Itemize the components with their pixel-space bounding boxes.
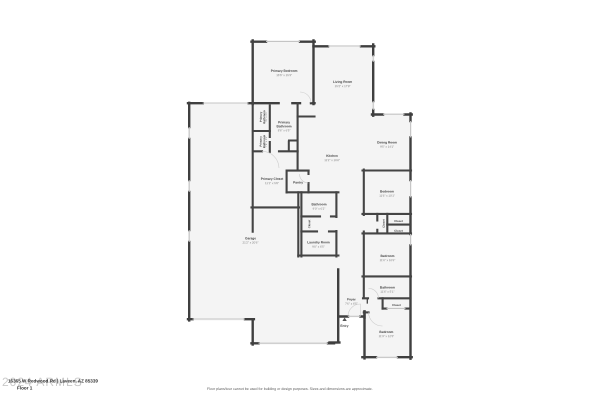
svg-text:9'0" x 6'2": 9'0" x 6'2": [313, 207, 326, 211]
svg-text:Closet: Closet: [394, 219, 403, 223]
svg-text:8'6" x 6'5": 8'6" x 6'5": [278, 128, 291, 132]
svg-text:Closet: Closet: [307, 220, 311, 229]
svg-text:7'6" x 3'1": 7'6" x 3'1": [265, 111, 268, 122]
svg-text:Closet: Closet: [382, 219, 386, 228]
svg-text:Floor 1: Floor 1: [17, 385, 33, 390]
svg-text:11'1" x 5'8": 11'1" x 5'8": [265, 181, 279, 185]
svg-text:21'2" x 20'6": 21'2" x 20'6": [243, 241, 259, 245]
svg-text:11'6" x 10'6": 11'6" x 10'6": [380, 258, 396, 262]
svg-text:9'5" x 14'1": 9'5" x 14'1": [380, 145, 394, 149]
svg-text:11'6" x 5'1": 11'6" x 5'1": [380, 290, 394, 294]
svg-text:Closet: Closet: [392, 303, 401, 307]
svg-text:Closet: Closet: [394, 229, 403, 233]
svg-text:11'2" x 16'8": 11'2" x 16'8": [324, 158, 340, 162]
svg-text:11'9" x 12'5": 11'9" x 12'5": [379, 334, 395, 338]
svg-text:9'0" x 6'5": 9'0" x 6'5": [312, 245, 325, 249]
svg-text:11'6" x 10'1": 11'6" x 10'1": [379, 194, 395, 198]
svg-text:7'6" x 6'5": 7'6" x 6'5": [345, 302, 358, 306]
svg-text:15'2" x 17'8": 15'2" x 17'8": [335, 84, 351, 88]
svg-text:7'6" x 3'5": 7'6" x 3'5": [265, 136, 268, 147]
svg-text:Entry: Entry: [340, 324, 348, 328]
svg-text:Pantry: Pantry: [293, 180, 303, 184]
svg-text:Floor plans/tour cannot be use: Floor plans/tour cannot be used for buil…: [207, 387, 373, 391]
svg-text:15'5" x 15'3": 15'5" x 15'3": [276, 73, 292, 77]
